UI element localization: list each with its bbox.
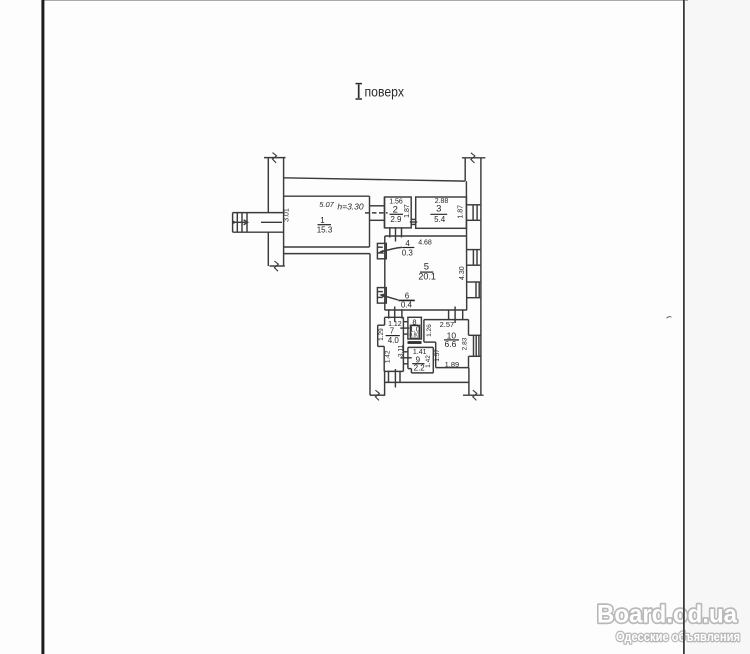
svg-text:1.57: 1.57 (434, 349, 441, 362)
svg-text:0.3: 0.3 (402, 248, 414, 257)
svg-text:1.42: 1.42 (425, 355, 432, 368)
svg-text:7: 7 (390, 327, 395, 336)
svg-text:1.89: 1.89 (445, 360, 460, 369)
svg-text:1.87: 1.87 (457, 205, 464, 219)
svg-text:15.3: 15.3 (317, 226, 333, 235)
svg-text:4.0: 4.0 (388, 336, 400, 345)
svg-text:1.26: 1.26 (426, 324, 433, 337)
svg-text:Одесские объявления: Одесские объявления (616, 629, 740, 644)
svg-text:4.30: 4.30 (459, 266, 466, 280)
svg-text:Board.od.ua: Board.od.ua (597, 601, 737, 628)
svg-text:5.07: 5.07 (319, 200, 334, 209)
svg-text:3.01: 3.01 (284, 208, 291, 222)
svg-text:3.11: 3.11 (397, 345, 404, 358)
svg-text:1: 1 (320, 216, 325, 225)
svg-text:0.80: 0.80 (409, 333, 419, 339)
svg-text:0.4: 0.4 (401, 300, 413, 309)
svg-text:2.2: 2.2 (414, 364, 426, 373)
svg-text:1.42: 1.42 (384, 350, 391, 363)
svg-text:2.83: 2.83 (461, 337, 468, 350)
svg-text:5.4: 5.4 (434, 215, 446, 224)
svg-text:2.57: 2.57 (440, 320, 455, 329)
svg-text:1.87: 1.87 (404, 204, 411, 218)
svg-text:4.68: 4.68 (418, 239, 432, 246)
svg-text:2.9: 2.9 (390, 215, 402, 224)
svg-text:поверх: поверх (365, 84, 405, 100)
svg-text:6: 6 (405, 292, 410, 301)
svg-text:20.1: 20.1 (418, 272, 436, 282)
svg-text:h=3.30: h=3.30 (337, 202, 364, 212)
svg-text:3: 3 (436, 204, 441, 215)
svg-text:4: 4 (405, 239, 410, 248)
svg-text:1.29: 1.29 (378, 328, 385, 341)
